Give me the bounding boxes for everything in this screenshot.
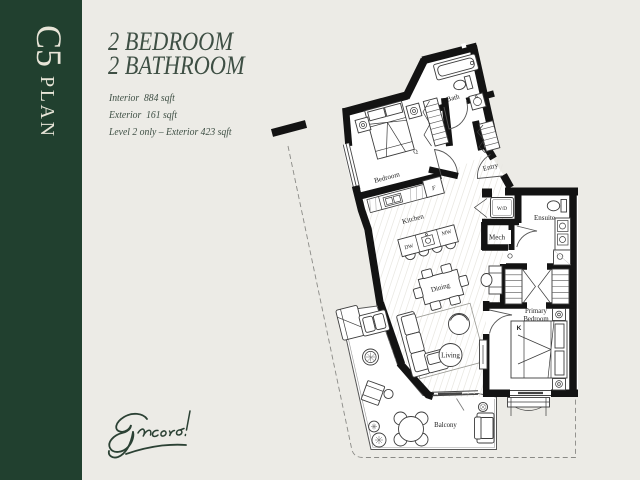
svg-text:Living: Living: [441, 352, 460, 360]
svg-text:K: K: [517, 325, 522, 332]
svg-text:Ensuite: Ensuite: [534, 214, 555, 222]
svg-text:Bedroom: Bedroom: [523, 316, 549, 323]
svg-text:Primary: Primary: [525, 308, 547, 315]
svg-text:Balcony: Balcony: [434, 422, 457, 429]
svg-text:W/D: W/D: [497, 206, 507, 212]
svg-text:Mech: Mech: [489, 234, 505, 242]
